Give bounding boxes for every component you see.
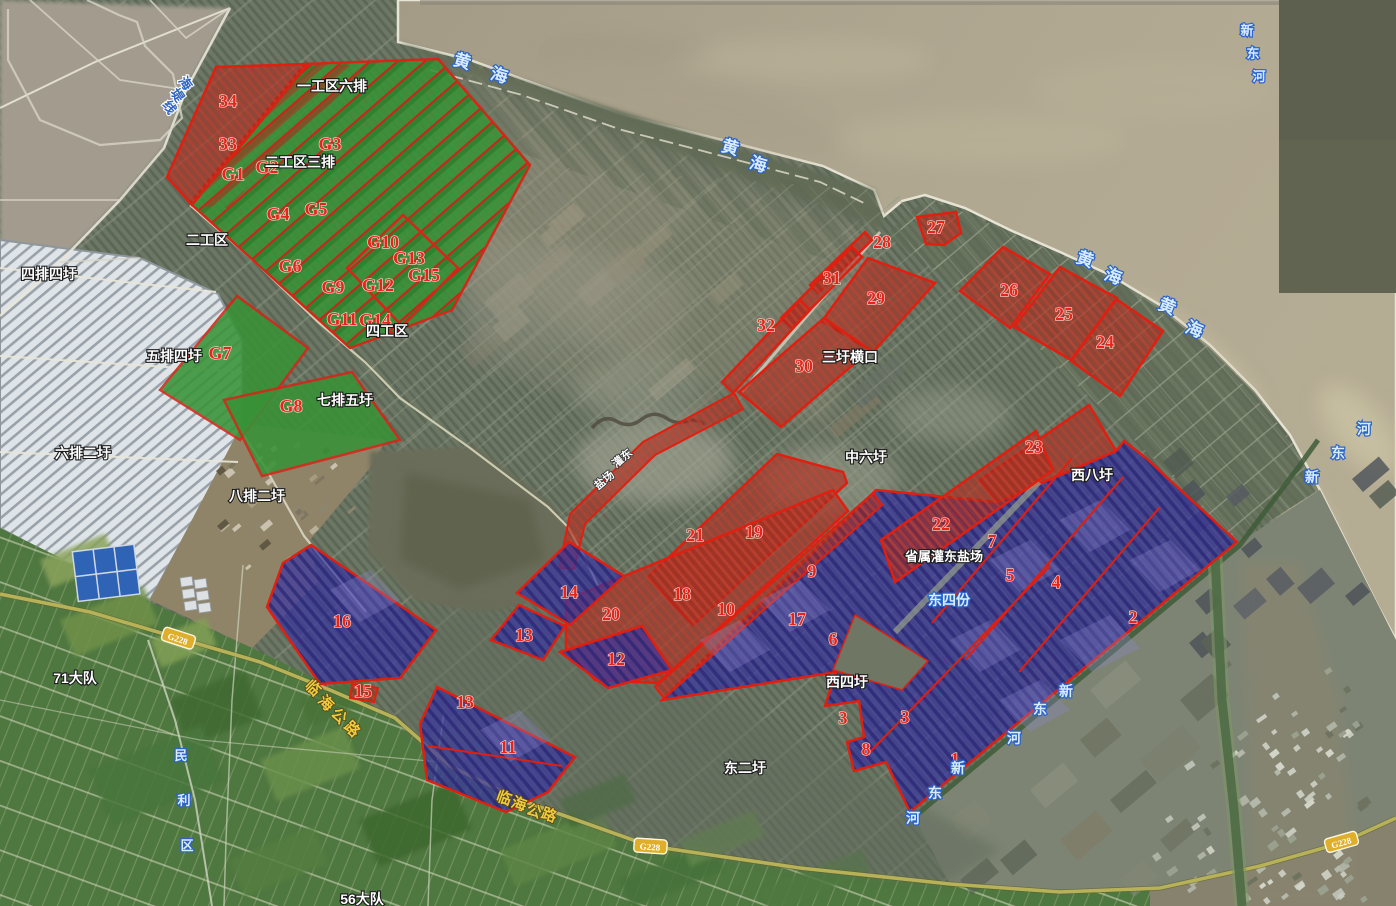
svg-text:民: 民 (174, 748, 187, 763)
svg-text:56大队: 56大队 (340, 891, 385, 906)
svg-text:23: 23 (1025, 437, 1043, 457)
svg-text:30: 30 (795, 356, 813, 376)
svg-text:河: 河 (906, 810, 920, 826)
svg-text:21: 21 (686, 525, 704, 545)
svg-text:河: 河 (1252, 69, 1265, 84)
svg-text:G5: G5 (304, 199, 327, 219)
svg-text:29: 29 (867, 288, 885, 308)
svg-text:31: 31 (823, 268, 841, 288)
svg-text:东: 东 (1246, 46, 1259, 61)
svg-text:新: 新 (1240, 23, 1253, 38)
svg-text:东: 东 (928, 785, 942, 801)
svg-text:中六圩: 中六圩 (845, 449, 887, 465)
svg-text:G228: G228 (639, 841, 661, 852)
svg-text:4: 4 (1052, 572, 1061, 592)
svg-text:2: 2 (1129, 607, 1138, 627)
svg-text:G15: G15 (408, 265, 440, 285)
svg-text:七排五圩: 七排五圩 (317, 392, 373, 408)
svg-text:8: 8 (862, 739, 871, 759)
svg-text:省属灌东盐场: 省属灌东盐场 (904, 549, 983, 564)
svg-text:G4: G4 (266, 204, 289, 224)
svg-text:11: 11 (499, 737, 516, 757)
svg-text:G3: G3 (318, 134, 341, 154)
svg-text:新: 新 (951, 760, 965, 776)
svg-text:四排四圩: 四排四圩 (21, 266, 77, 282)
svg-text:西八圩: 西八圩 (1071, 467, 1113, 483)
svg-text:22: 22 (932, 514, 950, 534)
svg-text:新: 新 (1059, 683, 1073, 699)
svg-text:16: 16 (333, 611, 351, 631)
svg-text:12: 12 (607, 649, 625, 669)
svg-text:利: 利 (177, 793, 190, 808)
svg-text:28: 28 (873, 232, 891, 252)
svg-text:六排二圩: 六排二圩 (55, 445, 111, 461)
svg-text:19: 19 (745, 522, 763, 542)
svg-text:15: 15 (354, 681, 372, 701)
svg-text:20: 20 (602, 604, 620, 624)
svg-text:东: 东 (1331, 445, 1345, 461)
svg-text:东四份: 东四份 (928, 592, 971, 608)
svg-text:G12: G12 (362, 275, 394, 295)
svg-text:一工区六排: 一工区六排 (297, 78, 367, 94)
svg-text:二工区三排: 二工区三排 (265, 154, 335, 170)
svg-text:13: 13 (456, 692, 474, 712)
svg-text:G11: G11 (326, 309, 357, 329)
svg-text:6: 6 (829, 629, 838, 649)
svg-text:7: 7 (988, 531, 997, 551)
svg-text:5: 5 (1006, 565, 1015, 585)
svg-text:区: 区 (180, 838, 193, 853)
svg-text:32: 32 (757, 315, 775, 335)
svg-text:河: 河 (1007, 730, 1021, 746)
svg-text:河: 河 (1357, 421, 1371, 437)
svg-text:25: 25 (1055, 304, 1073, 324)
svg-text:四工区: 四工区 (366, 323, 408, 339)
svg-text:东二圩: 东二圩 (724, 760, 766, 776)
svg-text:18: 18 (673, 584, 691, 604)
svg-text:三圩横口: 三圩横口 (822, 349, 878, 365)
svg-text:八排二圩: 八排二圩 (228, 488, 285, 504)
svg-text:71大队: 71大队 (53, 670, 98, 686)
svg-text:17: 17 (788, 609, 806, 629)
svg-text:10: 10 (717, 599, 735, 619)
svg-text:13: 13 (515, 625, 533, 645)
svg-text:西四圩: 西四圩 (826, 674, 868, 690)
svg-text:34: 34 (219, 91, 237, 111)
svg-text:26: 26 (1000, 280, 1018, 300)
svg-text:二工区: 二工区 (186, 232, 228, 248)
svg-text:G1: G1 (221, 164, 244, 184)
svg-text:G9: G9 (321, 277, 344, 297)
svg-text:G8: G8 (279, 396, 302, 416)
svg-text:33: 33 (219, 134, 237, 154)
svg-text:9: 9 (808, 561, 817, 581)
svg-text:14: 14 (560, 582, 578, 602)
svg-text:3: 3 (839, 708, 848, 728)
svg-text:3: 3 (901, 707, 910, 727)
svg-text:24: 24 (1096, 332, 1114, 352)
svg-text:G7: G7 (208, 343, 231, 363)
svg-text:五排四圩: 五排四圩 (146, 348, 202, 364)
svg-text:新: 新 (1305, 469, 1319, 485)
svg-text:G6: G6 (278, 256, 301, 276)
svg-text:东: 东 (1033, 701, 1047, 717)
svg-text:27: 27 (927, 217, 945, 237)
